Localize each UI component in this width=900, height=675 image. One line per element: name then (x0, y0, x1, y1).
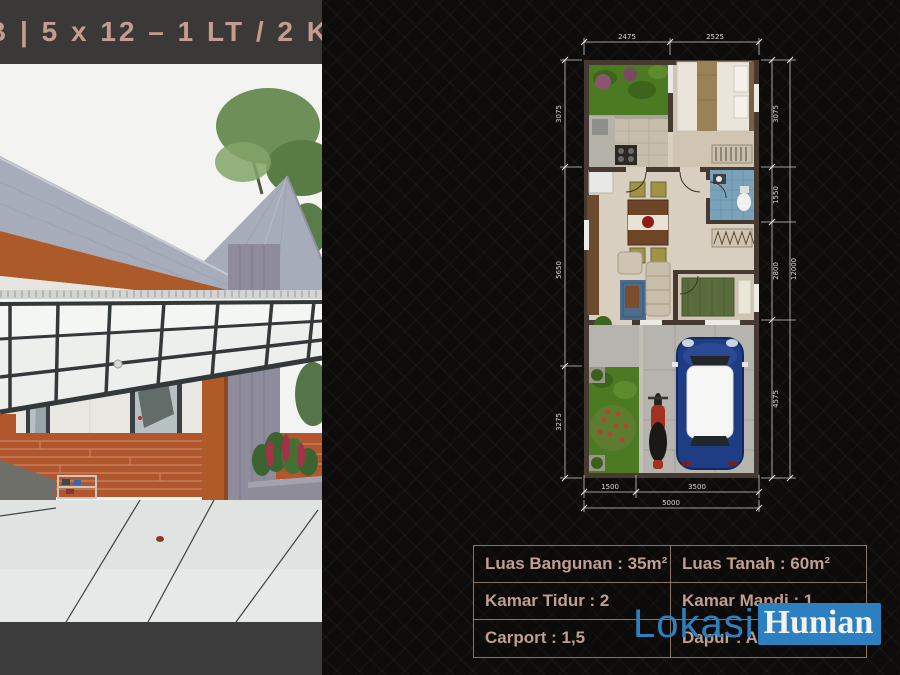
tv-cabinet (587, 195, 599, 315)
dim-right-3: 2800 (772, 262, 780, 280)
watermark: Lokasi Hunian (633, 603, 881, 645)
photo-bottom-strip (0, 622, 322, 675)
car-roof (687, 366, 733, 438)
dim-left-1: 3075 (555, 105, 563, 123)
fridge (589, 171, 613, 193)
car (672, 338, 748, 469)
bathroom (710, 170, 754, 220)
flower-bush (590, 405, 636, 451)
floor-plan-drawing: 2475 2525 3075 5650 3275 3075 1550 2800 … (530, 30, 820, 530)
floor-plan: 2475 2525 3075 5650 3275 3075 1550 2800 … (530, 30, 820, 530)
house-photo-illustration (0, 64, 322, 622)
lounger (738, 280, 751, 314)
armchair (618, 252, 642, 274)
spec-luas-bangunan: Luas Bangunan : 35m² (474, 546, 671, 583)
title-bar: B | 5 x 12 – 1 LT / 2 KT (0, 0, 322, 64)
dim-left-2: 5650 (555, 261, 563, 279)
roof-eave (0, 290, 322, 299)
driveway-floor (0, 500, 322, 622)
spec-luas-tanah: Luas Tanah : 60m² (671, 546, 866, 583)
slide: B | 5 x 12 – 1 LT / 2 KT (0, 0, 900, 675)
toilet (737, 193, 751, 211)
bed-2 (682, 278, 734, 316)
dim-bottom-total: 5000 (662, 499, 680, 507)
garden-front (589, 65, 668, 119)
dim-bottom-2: 3500 (688, 483, 706, 491)
dim-top-1: 2475 (618, 33, 636, 41)
dim-top-2: 2525 (706, 33, 724, 41)
stove (615, 145, 637, 165)
watermark-lokasi: Lokasi (633, 604, 755, 644)
page-title: B | 5 x 12 – 1 LT / 2 KT (0, 16, 322, 48)
dim-right-total: 12000 (790, 258, 798, 280)
dim-right-4: 4575 (772, 390, 780, 408)
bedroom-2 (678, 274, 754, 320)
master-bedroom (673, 62, 754, 167)
dim-bottom-1: 1500 (601, 483, 619, 491)
pillow (734, 66, 748, 92)
dim-right-1: 3075 (772, 105, 780, 123)
coffee-table (625, 286, 639, 308)
garden-back (589, 367, 639, 473)
watermark-hunian: Hunian (758, 603, 882, 645)
dim-right-2: 1550 (772, 186, 780, 204)
dim-left-3: 3275 (555, 413, 563, 431)
wall-panel (668, 65, 673, 93)
house-photo (0, 64, 322, 622)
kitchen-sink (592, 119, 608, 135)
hall-cabinet (712, 229, 754, 247)
ceiling-light (114, 360, 122, 368)
sofa (646, 262, 670, 316)
